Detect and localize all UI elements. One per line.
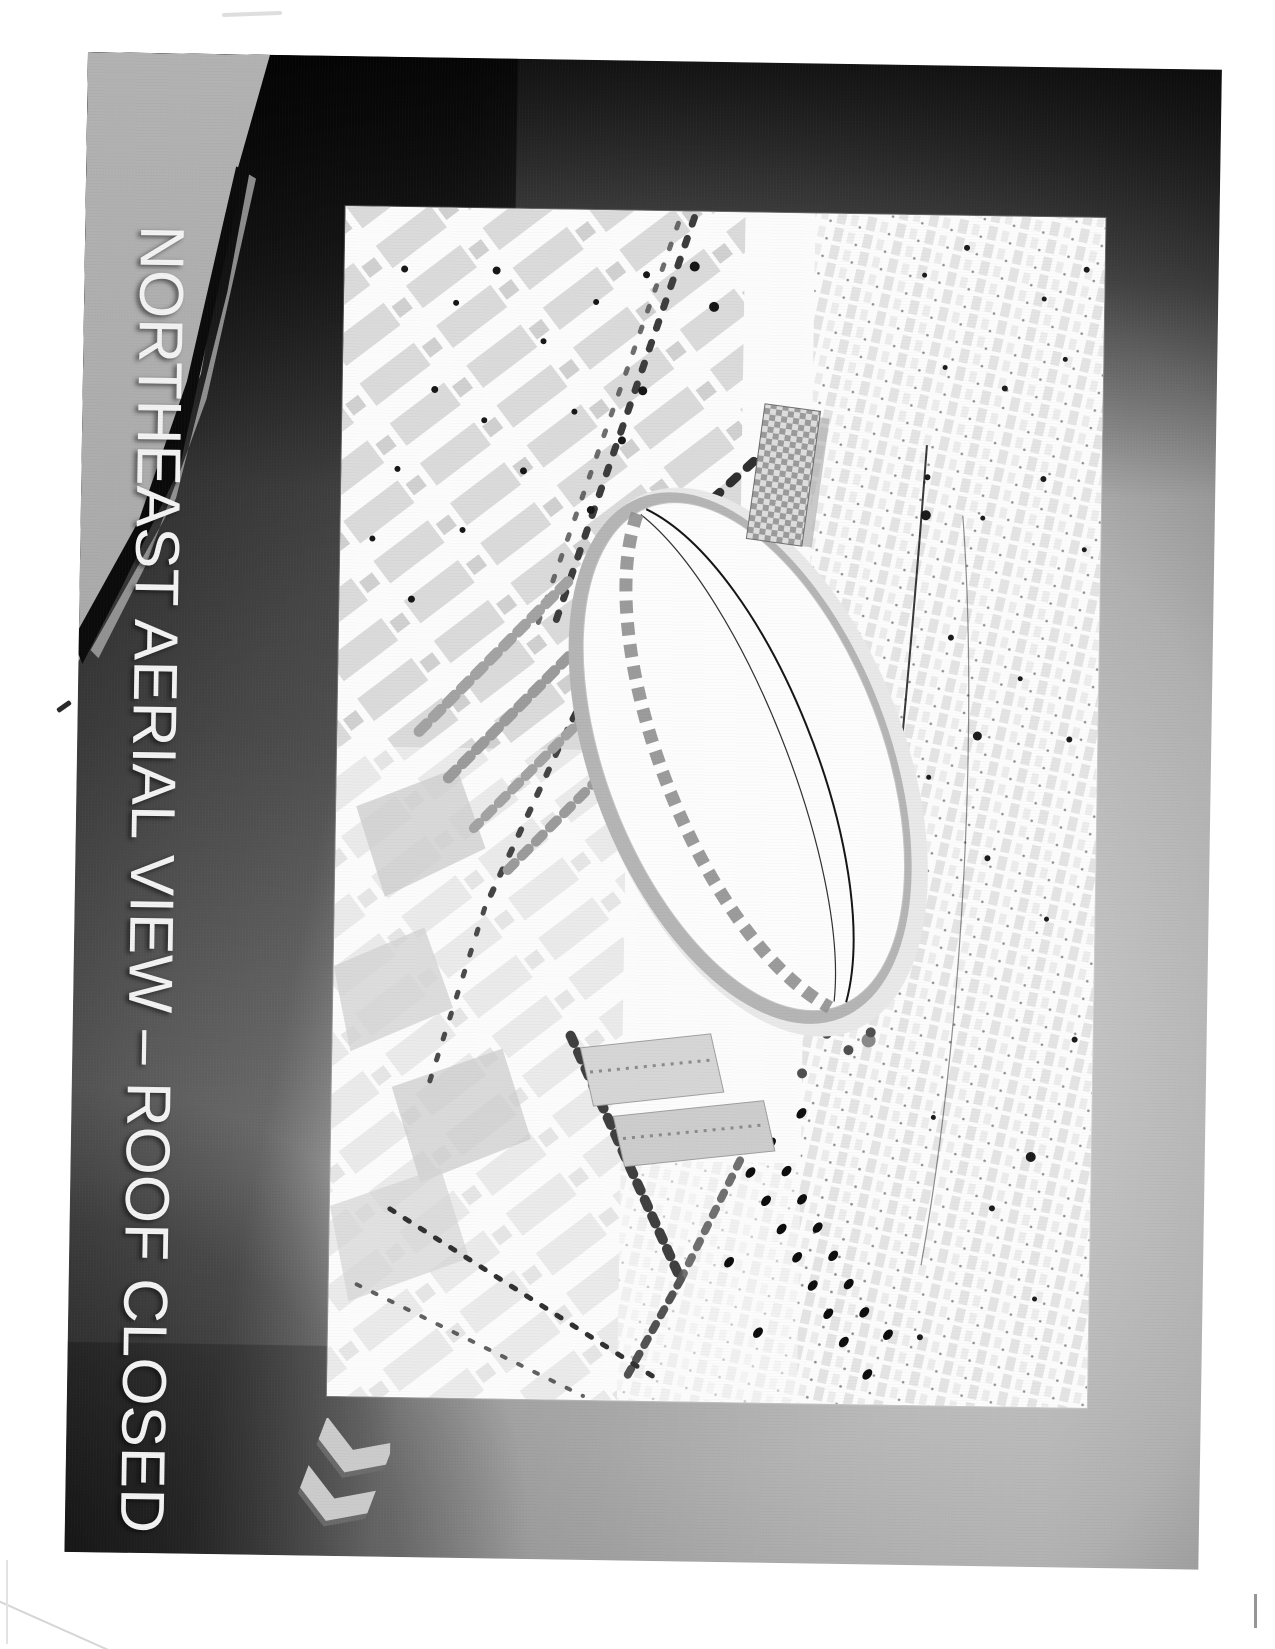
- slide: NORTHEAST AERIAL VIEW – ROOF CLOSED: [64, 52, 1221, 1570]
- scan-mark-left: [56, 700, 72, 713]
- aerial-art: [327, 206, 1106, 1408]
- scan-smudge-top: [222, 11, 282, 17]
- scan-edge-bottom-left: [6, 1560, 8, 1644]
- stadium-aerial-rendering: [327, 206, 1106, 1408]
- scanned-page: NORTHEAST AERIAL VIEW – ROOF CLOSED: [0, 0, 1275, 1649]
- scan-mark-right: [1254, 1594, 1257, 1628]
- scan-fold-bottom-left: [0, 1598, 113, 1649]
- double-chevron-icon: [297, 1417, 391, 1530]
